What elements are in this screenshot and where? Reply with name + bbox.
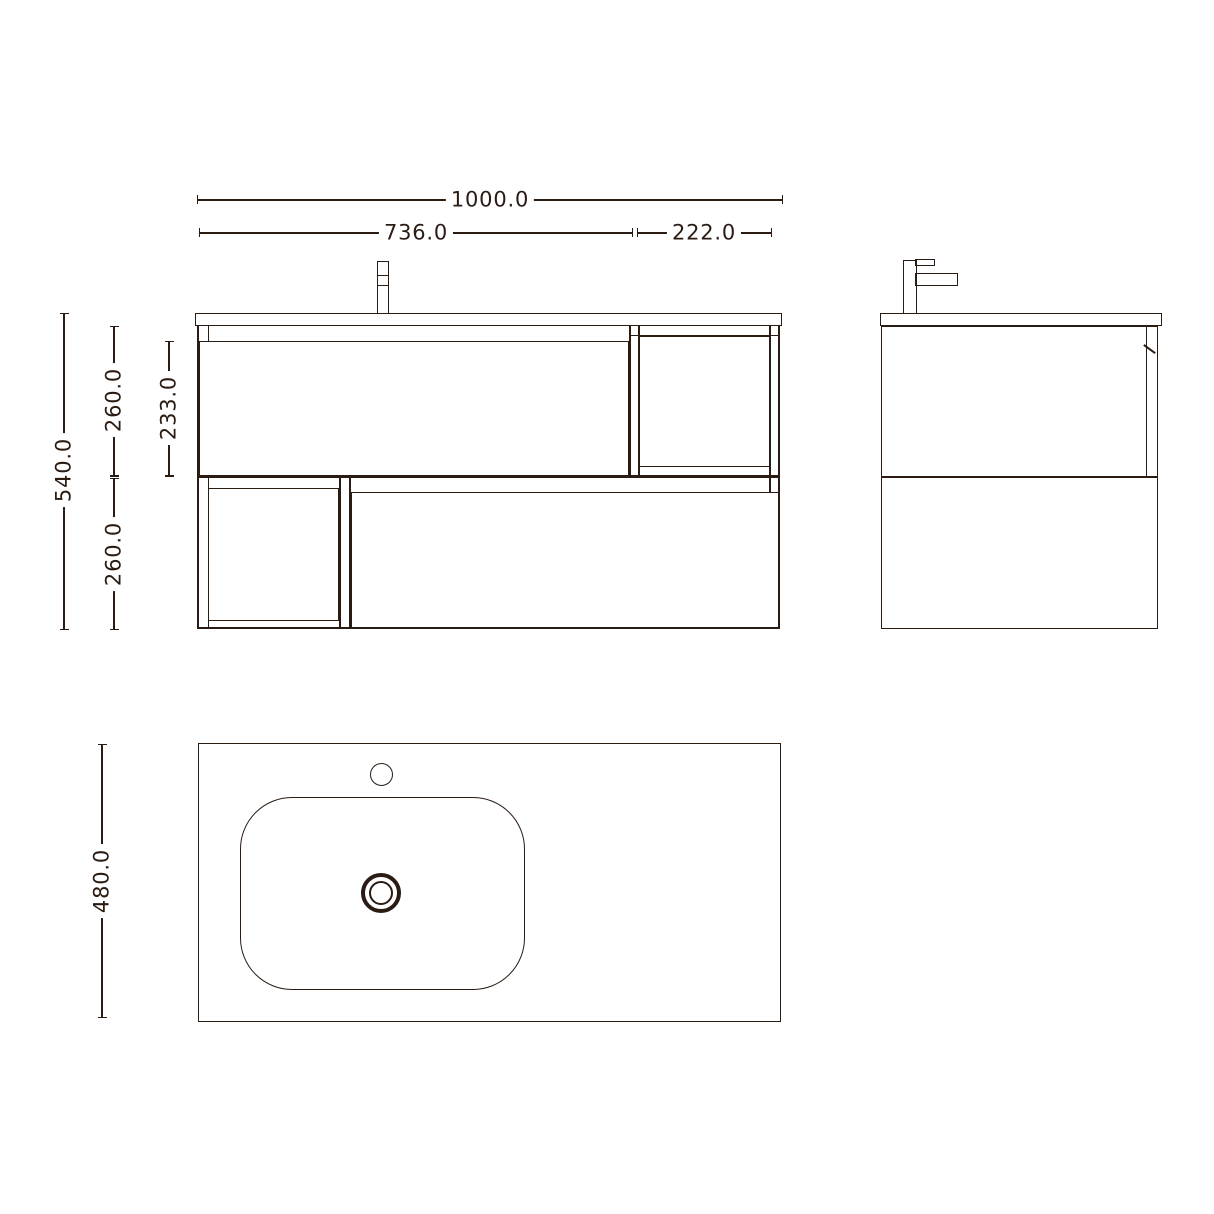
faucet-hole [370,763,393,786]
dim-shelf-width-label: 222.0 [667,222,741,245]
dim-tick [110,629,119,631]
technical-drawing-vanity: 1000.0 736.0 222.0 [0,0,1214,1214]
dim-total-width-label: 1000.0 [446,189,534,212]
center-stile-upper-left [629,326,631,476]
center-stile-lower-left [339,478,341,628]
side-divider [881,476,1158,478]
dim-tick [60,629,69,631]
faucet-side-handle [915,259,935,266]
open-shelf-right [639,336,770,467]
dim-tick [632,228,634,237]
dim-tick [98,744,107,746]
dim-tick [110,326,119,328]
right-inner-edge [769,326,771,492]
middle-divider [197,475,780,478]
dim-drawer-face-height-label: 233.0 [158,371,181,445]
dim-tick [165,475,174,477]
faucet-side-post [903,260,917,314]
dim-tick [110,475,119,477]
bottom-drawer-face [351,492,780,628]
faucet-front-seam [378,275,388,276]
dim-upper-height-label: 260.0 [103,363,126,437]
left-stile-upper [208,326,209,342]
dim-tick [197,195,199,204]
dim-total-height-label: 540.0 [53,433,76,507]
countertop-front [195,313,782,326]
top-drawer-face [199,341,629,476]
dim-tick [782,195,784,204]
dim-tick [165,341,174,343]
faucet-front-seam [378,285,388,286]
dim-depth-label: 480.0 [91,844,114,918]
dim-tick [199,228,201,237]
dim-drawer-width-label: 736.0 [379,222,453,245]
open-shelf-left [208,488,339,621]
dim-tick [637,228,639,237]
dim-tick [98,1017,107,1019]
faucet-side-spout [915,273,958,286]
dim-tick [110,478,119,480]
dim-lower-height-label: 260.0 [103,517,126,591]
dim-tick [771,228,773,237]
drain-inner-ring [369,881,393,905]
dim-tick [60,313,69,315]
faucet-front [377,261,389,314]
countertop-side [880,313,1162,326]
